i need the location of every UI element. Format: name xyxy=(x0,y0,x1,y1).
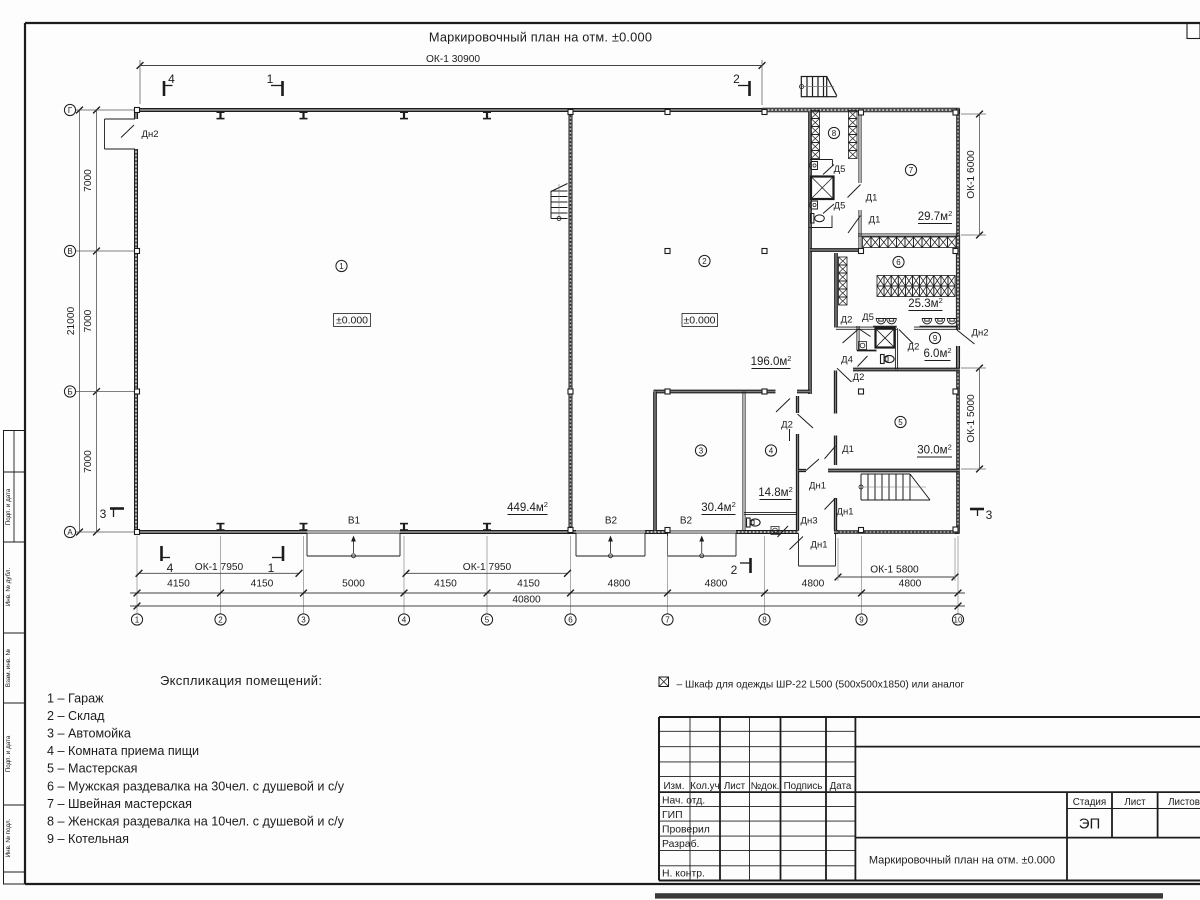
svg-text:4: 4 xyxy=(402,616,407,625)
svg-text:ОК-1 7950: ОК-1 7950 xyxy=(195,562,244,573)
svg-text:В: В xyxy=(67,247,72,256)
svg-text:9: 9 xyxy=(859,616,864,625)
svg-text:ОК-1 5000: ОК-1 5000 xyxy=(966,394,977,443)
svg-text:Подпись: Подпись xyxy=(784,781,823,792)
svg-text:Д5: Д5 xyxy=(834,201,846,212)
svg-text:5: 5 xyxy=(898,418,903,427)
svg-text:ОК-1 6000: ОК-1 6000 xyxy=(966,150,977,199)
svg-text:ОК-1 7950: ОК-1 7950 xyxy=(463,562,512,573)
svg-text:Маркировочный план на отм. ±0.: Маркировочный план на отм. ±0.000 xyxy=(869,855,1055,867)
svg-text:Нач. отд.: Нач. отд. xyxy=(662,796,705,807)
svg-text:4: 4 xyxy=(769,447,774,456)
svg-text:8 – Женская раздевалка на 10че: 8 – Женская раздевалка на 10чел. с душев… xyxy=(47,814,345,828)
svg-text:6: 6 xyxy=(568,616,573,625)
svg-text:9: 9 xyxy=(933,334,938,343)
svg-text:Д1: Д1 xyxy=(869,215,881,226)
svg-text:1 – Гараж: 1 – Гараж xyxy=(47,692,104,706)
svg-text:2: 2 xyxy=(731,563,738,577)
svg-text:7000: 7000 xyxy=(83,169,94,192)
svg-text:Н. контр.: Н. контр. xyxy=(662,869,705,880)
svg-text:Дн1: Дн1 xyxy=(809,481,826,492)
svg-text:4 – Комната приема пищи: 4 – Комната приема пищи xyxy=(47,744,199,758)
svg-text:21000: 21000 xyxy=(66,307,77,336)
svg-text:7 – Швейная мастерская: 7 – Швейная мастерская xyxy=(47,797,192,811)
svg-text:9 – Котельная: 9 – Котельная xyxy=(47,832,129,846)
svg-text:2 – Склад: 2 – Склад xyxy=(47,709,105,723)
svg-text:Д2: Д2 xyxy=(908,342,920,353)
svg-text:Изм.: Изм. xyxy=(664,781,685,792)
svg-text:А: А xyxy=(67,528,73,537)
svg-text:4: 4 xyxy=(168,72,175,86)
svg-text:25.3м2: 25.3м2 xyxy=(908,296,942,310)
svg-text:3 – Автомойка: 3 – Автомойка xyxy=(47,727,131,741)
svg-text:7000: 7000 xyxy=(83,450,94,473)
svg-text:3: 3 xyxy=(986,508,993,522)
svg-text:±0.000: ±0.000 xyxy=(683,315,715,327)
svg-text:14.8м2: 14.8м2 xyxy=(758,485,792,499)
svg-text:7: 7 xyxy=(665,616,670,625)
svg-text:3: 3 xyxy=(699,447,704,456)
svg-text:1: 1 xyxy=(339,262,344,271)
svg-text:Д1: Д1 xyxy=(866,193,878,204)
svg-text:ГИП: ГИП xyxy=(662,810,683,821)
svg-text:7: 7 xyxy=(909,166,914,175)
svg-text:Листов: Листов xyxy=(1168,797,1200,808)
svg-text:1: 1 xyxy=(267,72,274,86)
svg-text:3: 3 xyxy=(100,507,107,521)
svg-text:В2: В2 xyxy=(605,516,618,527)
svg-text:Дн2: Дн2 xyxy=(972,328,989,339)
svg-text:7000: 7000 xyxy=(83,309,94,332)
svg-text:№док.: №док. xyxy=(751,781,780,792)
svg-text:8: 8 xyxy=(832,129,837,138)
svg-text:4150: 4150 xyxy=(517,579,540,590)
svg-text:Дн1: Дн1 xyxy=(811,540,828,551)
svg-text:5 – Мастерская: 5 – Мастерская xyxy=(47,762,137,776)
svg-text:Инв. № подл.: Инв. № подл. xyxy=(5,818,12,857)
svg-text:6 – Мужская раздевалка на 30че: 6 – Мужская раздевалка на 30чел. с душев… xyxy=(47,779,345,793)
svg-text:6.0м2: 6.0м2 xyxy=(923,346,951,360)
svg-text:6: 6 xyxy=(896,258,901,267)
svg-text:Маркировочный план на отм. ±0.: Маркировочный план на отм. ±0.000 xyxy=(429,30,652,45)
svg-text:29.7м2: 29.7м2 xyxy=(918,209,952,223)
svg-text:±0.000: ±0.000 xyxy=(336,315,368,327)
svg-text:10: 10 xyxy=(954,616,963,625)
svg-text:3: 3 xyxy=(301,616,306,625)
svg-text:Г: Г xyxy=(68,106,73,115)
svg-text:В1: В1 xyxy=(348,516,361,527)
svg-text:4800: 4800 xyxy=(608,579,631,590)
svg-text:Лист: Лист xyxy=(1124,797,1146,808)
svg-text:Д2: Д2 xyxy=(781,420,793,431)
svg-text:2: 2 xyxy=(702,257,707,266)
svg-text:Проверил: Проверил xyxy=(662,825,710,836)
svg-text:Д4: Д4 xyxy=(841,355,853,366)
svg-text:4800: 4800 xyxy=(705,579,728,590)
svg-text:1: 1 xyxy=(135,616,140,625)
svg-text:ОК-1 5800: ОК-1 5800 xyxy=(870,565,919,576)
svg-text:ЭП: ЭП xyxy=(1079,816,1101,833)
svg-text:4150: 4150 xyxy=(434,579,457,590)
svg-text:4150: 4150 xyxy=(167,579,190,590)
svg-text:5: 5 xyxy=(485,616,490,625)
svg-text:Дата: Дата xyxy=(830,781,852,792)
svg-text:Д2: Д2 xyxy=(841,315,853,326)
svg-text:Кол.уч: Кол.уч xyxy=(690,781,719,792)
svg-text:Инв. № дубл.: Инв. № дубл. xyxy=(5,568,12,607)
svg-text:4150: 4150 xyxy=(251,579,274,590)
svg-text:2: 2 xyxy=(733,72,740,86)
svg-text:4800: 4800 xyxy=(899,579,922,590)
svg-text:Б: Б xyxy=(67,388,72,397)
svg-text:Д5: Д5 xyxy=(862,312,874,323)
svg-text:Дн2: Дн2 xyxy=(142,129,159,140)
svg-text:30.0м2: 30.0м2 xyxy=(917,443,951,457)
svg-text:449.4м2: 449.4м2 xyxy=(507,500,548,514)
svg-text:В2: В2 xyxy=(680,516,693,527)
svg-text:2: 2 xyxy=(218,616,223,625)
svg-text:8: 8 xyxy=(762,616,767,625)
svg-text:Разраб.: Разраб. xyxy=(662,838,699,850)
svg-text:Лист: Лист xyxy=(724,781,746,792)
svg-text:ОК-1 30900: ОК-1 30900 xyxy=(426,54,480,65)
svg-text:Стадия: Стадия xyxy=(1073,797,1106,808)
svg-text:Экспликация помещений:: Экспликация помещений: xyxy=(160,673,322,688)
svg-text:4800: 4800 xyxy=(802,579,825,590)
svg-text:Дн1: Дн1 xyxy=(837,507,854,518)
svg-text:Д1: Д1 xyxy=(842,444,854,455)
svg-text:– Шкаф для одежды ШР-22 L500 (: – Шкаф для одежды ШР-22 L500 (500x500x18… xyxy=(677,679,965,691)
svg-text:Подп. и дата: Подп. и дата xyxy=(5,488,12,525)
svg-text:5000: 5000 xyxy=(342,579,365,590)
svg-text:Подп. и дата: Подп. и дата xyxy=(5,735,12,772)
svg-text:Д2: Д2 xyxy=(853,372,865,383)
svg-text:196.0м2: 196.0м2 xyxy=(751,354,792,368)
svg-text:Дн3: Дн3 xyxy=(801,516,818,527)
svg-text:30.4м2: 30.4м2 xyxy=(701,500,735,514)
svg-text:Взам. инв. №: Взам. инв. № xyxy=(5,648,12,687)
svg-text:40800: 40800 xyxy=(512,595,541,606)
svg-text:Д5: Д5 xyxy=(834,164,846,175)
